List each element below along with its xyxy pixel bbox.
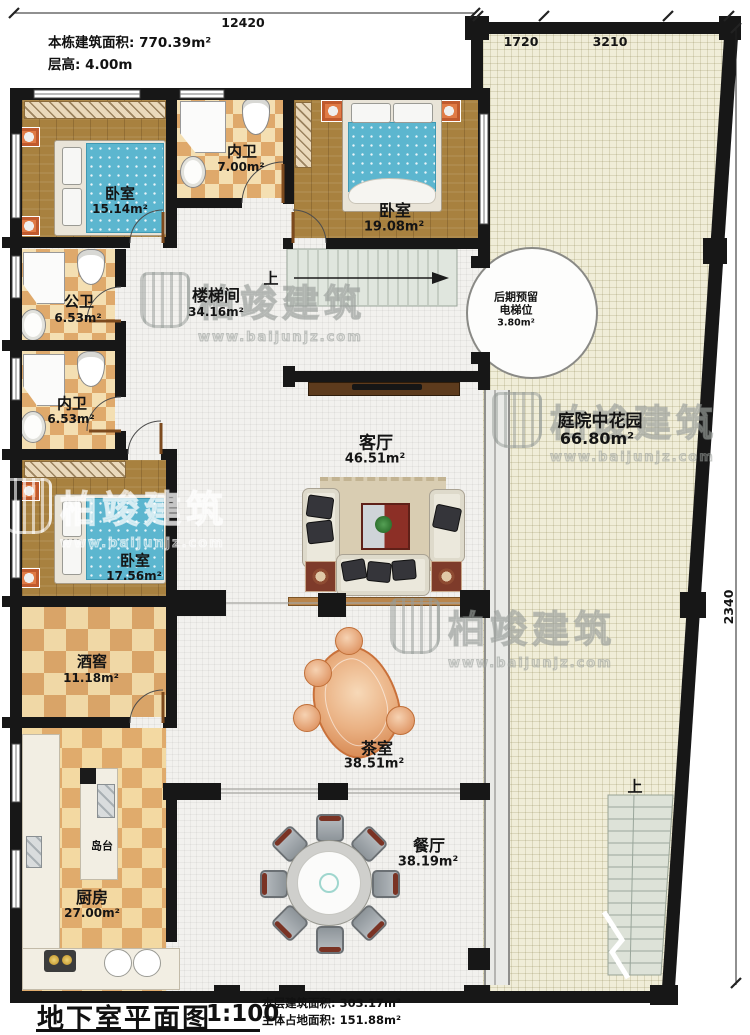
floor-area-text: 本层建筑面积: 303.17m² [262,995,401,1011]
watermark-url: www.baijunjz.com [550,450,718,465]
wall-column [719,16,741,40]
kitchen-label: 厨房 [76,890,108,906]
wall [471,22,738,34]
door-arc [293,210,326,243]
building-area-text: 本栋建筑面积: 770.39m² [48,31,211,51]
courtyard-label: 庭院中花园 [558,414,643,431]
watermark: 柏竣建筑 www.baijunjz.com [140,272,366,345]
wall [177,198,242,208]
elevator-label-line2: 电梯位 [500,305,533,316]
wine-cellar-area: 11.18m² [63,672,119,684]
wall-column [318,593,346,617]
watermark-logo [390,598,440,654]
wall-column [703,238,727,264]
bath1-area: 7.00m² [217,161,264,173]
dim-label-right: 2340 [723,590,736,625]
title-underline [36,1029,260,1032]
wine-cellar-label: 酒窖 [77,655,107,670]
wall [115,321,126,397]
wall [10,596,177,607]
watermark-brand: 柏竣建筑 [60,488,228,531]
watermark-logo [492,392,542,448]
wall-stub [2,596,11,607]
dining-area: 38.19m² [398,856,458,869]
tea-room-label: 茶室 [361,741,393,757]
elevator-label-line1: 后期预留 [494,292,538,303]
elevator-jamb [471,256,490,268]
elevator-jamb [471,352,490,364]
watermark-url: www.baijunjz.com [60,536,228,551]
elevator-area: 3.80m² [497,318,535,328]
watermark-url: www.baijunjz.com [198,330,366,345]
wall-stub [2,449,11,460]
door-arc [130,690,163,723]
wall [166,94,177,243]
dim-label-1720: 1720 [504,36,539,49]
watermark-brand: 柏竣建筑 [448,608,616,651]
stairwell-area: 34.16m² [188,306,244,318]
wall-column [163,783,221,800]
wall-column [464,985,490,1003]
living-label: 客厅 [359,436,393,453]
watermark: 柏竣建筑 www.baijunjz.com [2,478,228,551]
wall [10,340,115,351]
wall-column [468,948,490,970]
wall [115,249,126,287]
wall [163,717,177,728]
bedroom2-area: 19.08m² [364,221,424,234]
wall [326,238,484,249]
living-area: 46.51m² [345,453,405,466]
wall-slanted [661,22,739,1003]
bath2-area: 6.53m² [47,413,94,425]
wall [10,237,130,248]
wall-column [318,783,348,800]
bedroom3-label: 卧室 [120,554,150,569]
door-arc [128,421,161,454]
wall-stub [2,340,11,351]
basement-floor-plan: 柏竣建筑 www.baijunjz.com 柏竣建筑 www.baijunjz.… [0,0,750,1035]
wall [290,371,484,382]
exterior-stairs [604,795,673,978]
bedroom3-area: 17.56m² [106,570,162,582]
bath1-label: 内卫 [227,145,257,160]
bedroom1-label: 卧室 [105,187,135,202]
wall [163,237,177,248]
wall [166,795,177,942]
bedroom2-label: 卧室 [379,203,411,219]
wall-column [650,985,678,1005]
public-bath-label: 公卫 [64,295,94,310]
kitchen-area: 27.00m² [64,907,120,919]
courtyard-area: 66.80m² [560,431,634,447]
wall [283,94,294,204]
island-label: 岛台 [91,841,113,852]
stairwell-label: 楼梯间 [192,288,240,304]
bath2-label: 内卫 [57,397,87,412]
dim-label-3210: 3210 [593,36,628,49]
watermark-logo [140,272,190,328]
watermark: 柏竣建筑 www.baijunjz.com [390,598,616,671]
wall [283,366,295,387]
wall-column [168,590,226,616]
stairs-up-label: 上 [263,272,278,287]
dining-label: 餐厅 [413,838,445,854]
bedroom1-area: 15.14m² [92,203,148,215]
wall [10,717,130,728]
wall-stub [2,237,11,248]
wall [10,449,128,460]
floor-height-text: 层高: 4.00m [48,53,132,73]
exterior-stairs-up-label: 上 [627,780,642,795]
watermark-url: www.baijunjz.com [448,656,616,671]
footprint-area-text: 主体占地面积: 151.88m² [262,1012,401,1028]
wall-column [680,592,706,618]
public-bath-area: 6.53m² [54,312,101,324]
watermark-logo [2,478,52,534]
wall-column [465,16,489,40]
wall-column [460,783,490,800]
wall-stub [2,717,11,728]
dim-label-top: 12420 [221,17,265,30]
tea-room-area: 38.51m² [344,758,404,771]
